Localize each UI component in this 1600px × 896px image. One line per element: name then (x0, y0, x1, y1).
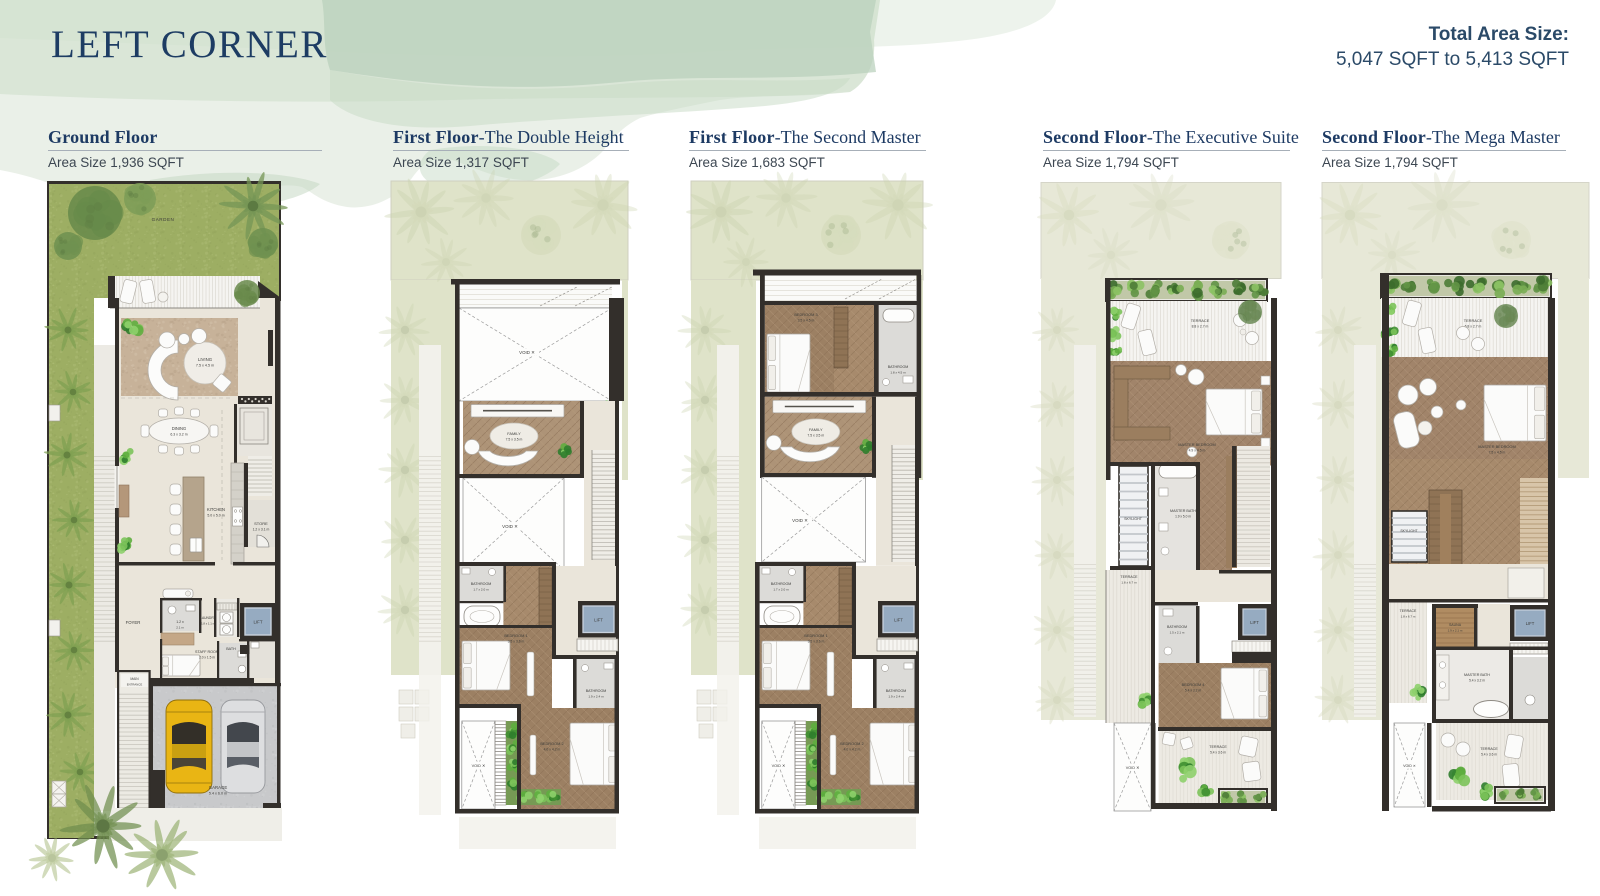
svg-text:LIFT: LIFT (894, 618, 903, 623)
svg-text:1.9 x 2.4 m: 1.9 x 2.4 m (888, 695, 904, 699)
svg-text:TERRACE: TERRACE (1209, 745, 1227, 749)
svg-text:1.2 x: 1.2 x (176, 620, 184, 624)
svg-text:ENTRANCE: ENTRANCE (127, 683, 143, 687)
svg-text:TERRACE: TERRACE (1120, 575, 1138, 579)
svg-text:8.8 x 2.7 m: 8.8 x 2.7 m (1192, 325, 1209, 329)
svg-text:VOID ✕: VOID ✕ (502, 524, 518, 529)
svg-text:3.5 x 3.6 m: 3.5 x 3.6 m (508, 640, 525, 644)
svg-text:FAMILY: FAMILY (809, 427, 823, 432)
svg-text:TERRACE: TERRACE (1464, 318, 1483, 323)
svg-text:LIVING: LIVING (198, 357, 213, 362)
svg-text:1.9 x 2.4 m: 1.9 x 2.4 m (588, 695, 604, 699)
svg-text:7.5 x 4.5 m: 7.5 x 4.5 m (196, 364, 214, 368)
svg-text:BEDROOM 2: BEDROOM 2 (840, 741, 863, 746)
svg-text:BEDROOM 3: BEDROOM 3 (794, 312, 817, 317)
svg-text:BATHROOM: BATHROOM (888, 365, 909, 369)
svg-text:BATHROOM: BATHROOM (886, 689, 907, 693)
svg-text:VOID ✕: VOID ✕ (519, 350, 535, 355)
svg-text:SKYLIGHT: SKYLIGHT (1124, 517, 1143, 521)
svg-text:BEDROOM 2: BEDROOM 2 (540, 741, 563, 746)
svg-text:6.3 x 3.2 m: 6.3 x 3.2 m (170, 433, 187, 437)
svg-text:1.8 x 1.1 m: 1.8 x 1.1 m (201, 622, 216, 626)
svg-text:2.1 m: 2.1 m (176, 626, 184, 630)
svg-text:1.8 x 4.5 m: 1.8 x 4.5 m (890, 371, 906, 375)
svg-text:1.8 x 6.7 m: 1.8 x 6.7 m (1121, 581, 1137, 585)
svg-text:1.2 x 3.1 m: 1.2 x 3.1 m (253, 528, 270, 532)
svg-text:VOID ✕: VOID ✕ (792, 518, 808, 523)
svg-text:3.5 x 4.5 m: 3.5 x 4.5 m (798, 319, 815, 323)
svg-text:1.5 x 2.1 m: 1.5 x 2.1 m (1170, 631, 1185, 635)
svg-text:VOID ✕: VOID ✕ (1403, 764, 1416, 768)
svg-text:VOID ✕: VOID ✕ (472, 764, 486, 768)
svg-text:5.4 x 3.6 m: 5.4 x 3.6 m (1210, 751, 1226, 755)
svg-text:TERRACE: TERRACE (1191, 318, 1210, 323)
svg-text:TERRACE: TERRACE (1400, 609, 1417, 613)
svg-text:5.4 x 6.0 m: 5.4 x 6.0 m (209, 792, 227, 796)
svg-text:LIFT: LIFT (594, 618, 603, 623)
svg-text:LIFT: LIFT (1250, 620, 1259, 625)
svg-text:7.5 x 3.5 m: 7.5 x 3.5 m (807, 433, 824, 437)
svg-text:LIFT: LIFT (253, 620, 262, 625)
svg-text:FAMILY: FAMILY (507, 431, 521, 436)
svg-text:1.8 x 6.7 m: 1.8 x 6.7 m (1401, 615, 1416, 619)
svg-text:4.0 x 4.2 m: 4.0 x 4.2 m (844, 748, 861, 752)
svg-text:1.9 x 5.0 m: 1.9 x 5.0 m (1175, 515, 1191, 519)
svg-text:1.7 x 2.0 m: 1.7 x 2.0 m (473, 588, 489, 592)
svg-text:3.5 x 3.6 m: 3.5 x 3.6 m (808, 640, 825, 644)
svg-text:TERRACE: TERRACE (1480, 747, 1498, 751)
svg-text:5.4 x 3.2 m: 5.4 x 3.2 m (1185, 689, 1202, 693)
svg-text:BATHROOM: BATHROOM (471, 582, 492, 586)
svg-text:MASTER BEDROOM: MASTER BEDROOM (1478, 444, 1515, 449)
svg-text:BEDROOM 4: BEDROOM 4 (1182, 683, 1205, 687)
svg-text:KITCHEN: KITCHEN (207, 507, 225, 512)
svg-text:STAFF ROOM: STAFF ROOM (195, 650, 219, 654)
svg-text:BEDROOM 1: BEDROOM 1 (804, 633, 827, 638)
svg-text:VOID ✕: VOID ✕ (772, 764, 786, 768)
svg-text:SAUNA: SAUNA (1449, 623, 1462, 627)
svg-text:2.0 x 1.5 m: 2.0 x 1.5 m (199, 656, 215, 660)
svg-text:5.4 x 3.2 m: 5.4 x 3.2 m (1469, 679, 1485, 683)
svg-text:MASTER BATH: MASTER BATH (1464, 673, 1490, 677)
svg-text:7.5 x 3.5 m: 7.5 x 3.5 m (506, 438, 523, 442)
svg-text:5.4 x 3.6 m: 5.4 x 3.6 m (1481, 753, 1497, 757)
svg-text:5.0 x 5.0 m: 5.0 x 5.0 m (207, 514, 224, 518)
svg-text:LIFT: LIFT (1526, 621, 1535, 626)
svg-text:BEDROOM 1: BEDROOM 1 (504, 633, 527, 638)
svg-text:4.9 x 4.5 m: 4.9 x 4.5 m (1189, 449, 1206, 453)
svg-text:BATHROOM: BATHROOM (586, 689, 607, 693)
svg-text:STORE: STORE (254, 521, 268, 526)
svg-text:4.0 x 4.2 m: 4.0 x 4.2 m (544, 748, 561, 752)
svg-text:DINING: DINING (172, 426, 186, 431)
svg-text:VOID ✕: VOID ✕ (1126, 766, 1140, 770)
svg-text:MAIN: MAIN (130, 677, 139, 681)
svg-text:MASTER BATH: MASTER BATH (1170, 509, 1196, 513)
svg-text:FOYER: FOYER (126, 620, 141, 625)
svg-text:GARDEN: GARDEN (152, 217, 175, 222)
svg-text:BATHROOM: BATHROOM (771, 582, 792, 586)
svg-text:1.9 x 2.1 m: 1.9 x 2.1 m (1448, 629, 1463, 633)
svg-text:7.5 x 4.5 m: 7.5 x 4.5 m (1489, 451, 1506, 455)
svg-text:MASTER BEDROOM: MASTER BEDROOM (1178, 442, 1215, 447)
svg-text:GARAGE: GARAGE (209, 785, 228, 790)
svg-text:1.7 x 2.0 m: 1.7 x 2.0 m (773, 588, 789, 592)
svg-text:SKYLIGHT: SKYLIGHT (1400, 529, 1418, 533)
svg-text:BATHROOM: BATHROOM (1167, 625, 1187, 629)
svg-text:BATH: BATH (226, 647, 236, 651)
